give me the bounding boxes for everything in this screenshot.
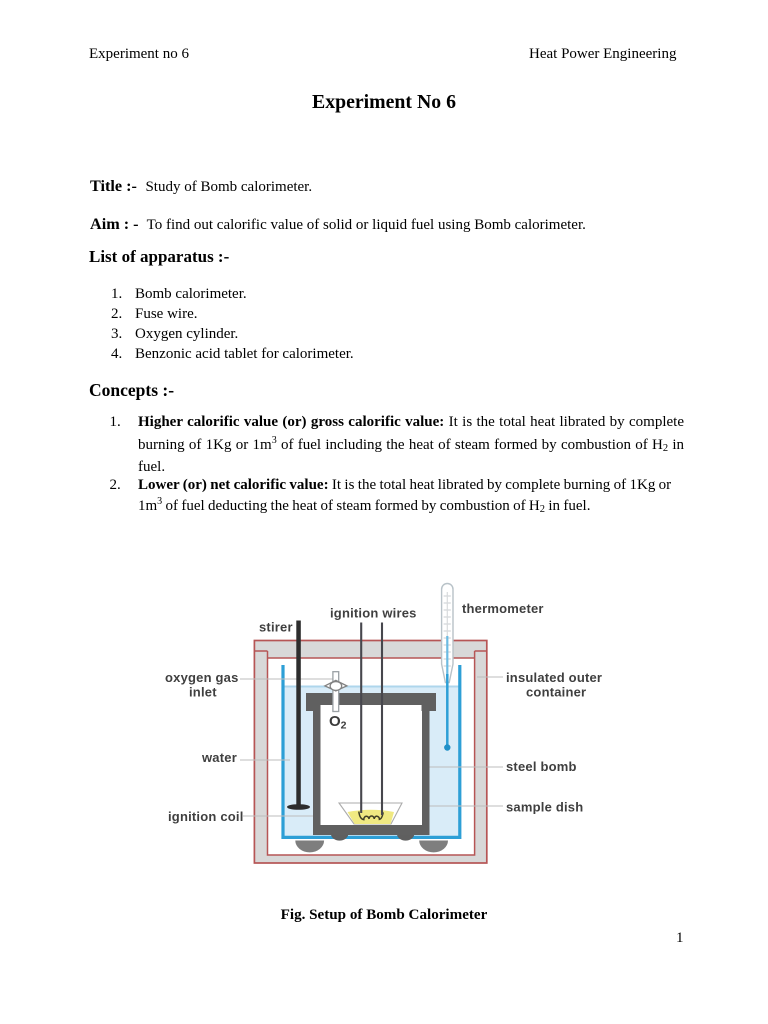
svg-text:oxygen gas: oxygen gas <box>165 670 239 685</box>
svg-text:ignition wires: ignition wires <box>330 606 417 621</box>
svg-text:insulated outer: insulated outer <box>506 670 602 685</box>
svg-text:stirer: stirer <box>259 620 293 635</box>
svg-text:water: water <box>201 750 237 765</box>
svg-text:container: container <box>526 685 586 700</box>
svg-text:steel bomb: steel bomb <box>506 759 577 774</box>
svg-text:thermometer: thermometer <box>462 601 544 616</box>
svg-text:inlet: inlet <box>189 685 217 700</box>
svg-text:ignition coil: ignition coil <box>168 809 244 824</box>
svg-text:sample dish: sample dish <box>506 800 583 815</box>
